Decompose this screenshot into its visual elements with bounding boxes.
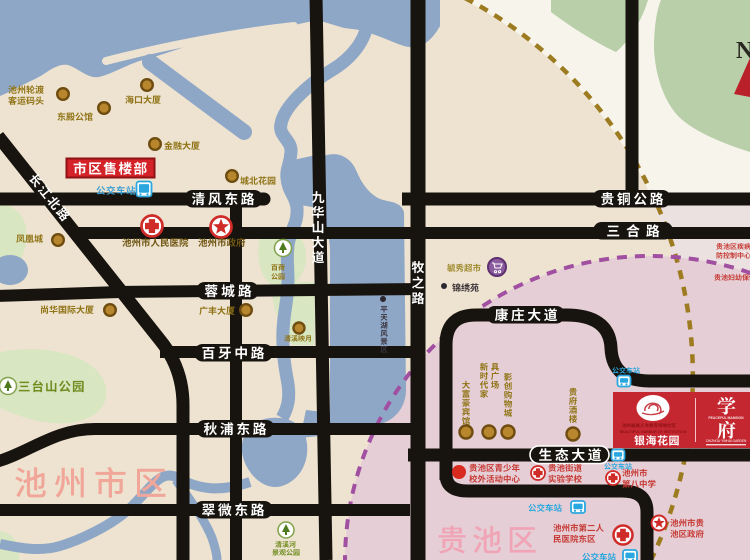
svg-text:N: N: [736, 38, 750, 64]
svg-text:CHIZHOU YINHAI GARDEN: CHIZHOU YINHAI GARDEN: [706, 439, 747, 443]
svg-text:BEAUTIFUL HARBOR OF INSTITUTIO: BEAUTIFUL HARBOR OF INSTITUTION: [620, 430, 687, 434]
svg-text:PEACEFUL MANSION: PEACEFUL MANSION: [708, 416, 744, 420]
